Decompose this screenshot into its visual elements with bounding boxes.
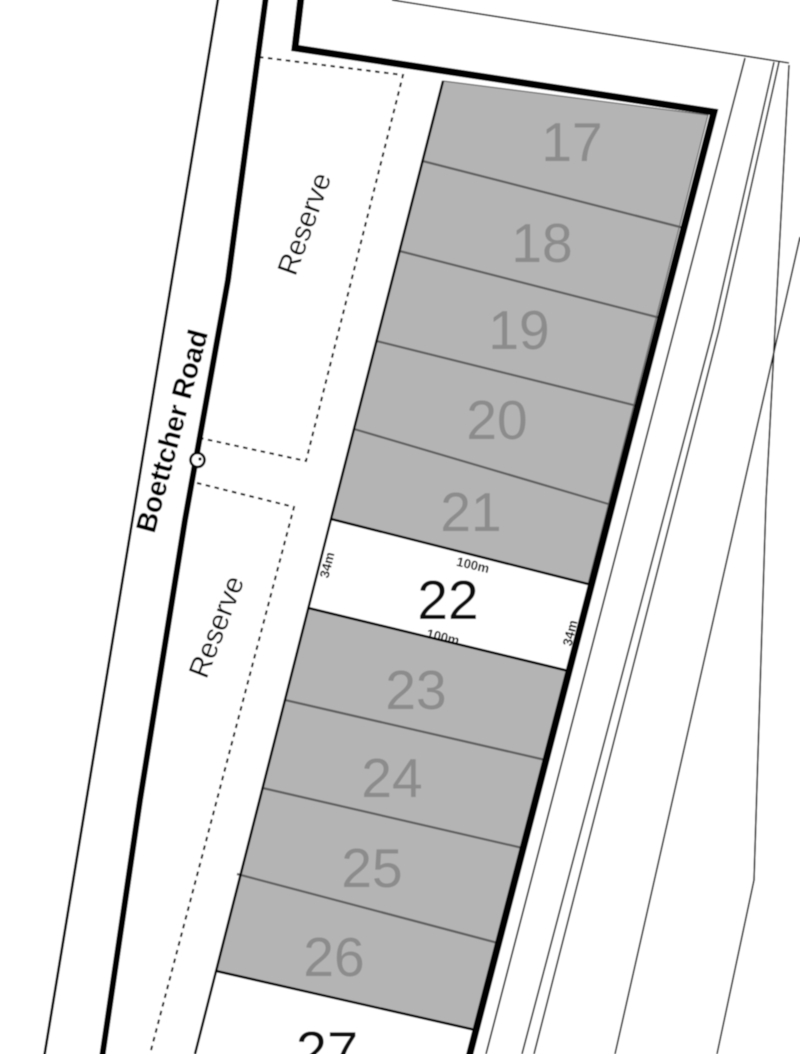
svg-text:22: 22	[417, 569, 478, 631]
svg-text:17: 17	[541, 111, 602, 173]
svg-text:18: 18	[511, 212, 572, 274]
svg-text:25: 25	[341, 837, 402, 899]
svg-text:19: 19	[488, 299, 549, 361]
svg-text:23: 23	[385, 659, 446, 721]
svg-text:27: 27	[296, 1020, 358, 1054]
svg-text:20: 20	[466, 389, 527, 451]
svg-text:21: 21	[440, 481, 501, 543]
svg-text:24: 24	[361, 747, 422, 809]
svg-text:26: 26	[303, 926, 364, 988]
